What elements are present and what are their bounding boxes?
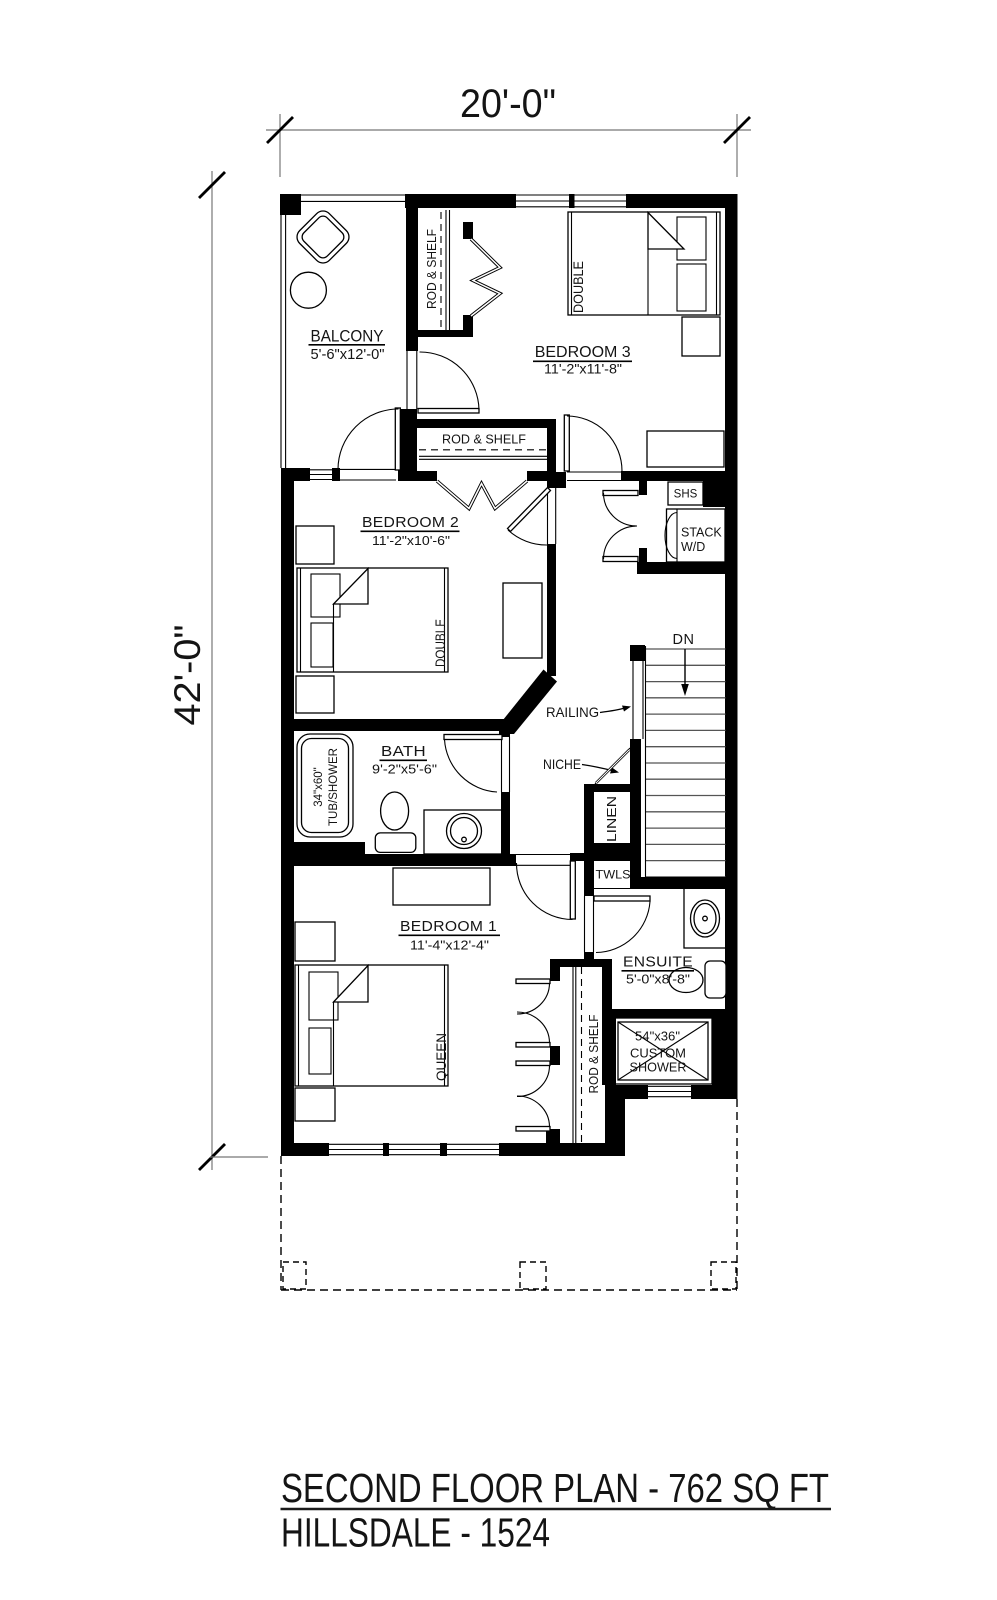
svg-text:STACK: STACK: [681, 526, 722, 540]
svg-text:HILLSDALE - 1524: HILLSDALE - 1524: [281, 1510, 550, 1556]
svg-text:CUSTOM: CUSTOM: [630, 1046, 686, 1061]
svg-text:SECOND FLOOR PLAN - 762 SQ FT: SECOND FLOOR PLAN - 762 SQ FT: [281, 1465, 829, 1511]
svg-text:5'-0"x8'-8": 5'-0"x8'-8": [626, 972, 690, 987]
svg-text:QUEEN: QUEEN: [434, 1033, 449, 1081]
svg-text:LINEN: LINEN: [605, 796, 619, 842]
svg-text:BEDROOM 1: BEDROOM 1: [400, 919, 497, 935]
svg-text:5'-6"x12'-0": 5'-6"x12'-0": [311, 347, 385, 363]
svg-text:ENSUITE: ENSUITE: [623, 955, 693, 971]
svg-text:54"x36": 54"x36": [635, 1029, 680, 1044]
svg-text:ROD & SHELF: ROD & SHELF: [442, 433, 526, 447]
svg-text:11'-4"x12'-4": 11'-4"x12'-4": [410, 937, 489, 952]
svg-text:11'-2"x11'-8": 11'-2"x11'-8": [544, 361, 622, 377]
svg-text:SHS: SHS: [674, 489, 698, 501]
svg-text:BEDROOM 2: BEDROOM 2: [362, 515, 459, 531]
svg-text:34"x60": 34"x60": [313, 767, 325, 807]
svg-text:DN: DN: [673, 632, 695, 648]
svg-text:BALCONY: BALCONY: [311, 327, 384, 346]
svg-text:9'-2"x5'-6": 9'-2"x5'-6": [372, 762, 437, 777]
svg-text:W/D: W/D: [681, 540, 705, 554]
svg-text:ROD & SHELF: ROD & SHELF: [425, 229, 439, 309]
svg-text:TUB/SHOWER: TUB/SHOWER: [328, 748, 340, 826]
svg-text:TWLS: TWLS: [596, 870, 631, 882]
svg-text:42'-0": 42'-0": [167, 625, 208, 726]
svg-text:SHOWER: SHOWER: [630, 1060, 687, 1075]
svg-text:RAILING: RAILING: [546, 704, 599, 720]
svg-text:NICHE: NICHE: [543, 756, 581, 772]
svg-text:DOUBLE: DOUBLE: [571, 261, 586, 313]
svg-text:ROD & SHELF: ROD & SHELF: [587, 1014, 601, 1093]
svg-text:BEDROOM 3: BEDROOM 3: [535, 344, 631, 361]
svg-text:11'-2"x10'-6": 11'-2"x10'-6": [372, 533, 450, 548]
svg-text:DOUBLE: DOUBLE: [433, 619, 448, 667]
svg-text:20'-0": 20'-0": [460, 82, 556, 126]
svg-text:BATH: BATH: [381, 744, 426, 760]
